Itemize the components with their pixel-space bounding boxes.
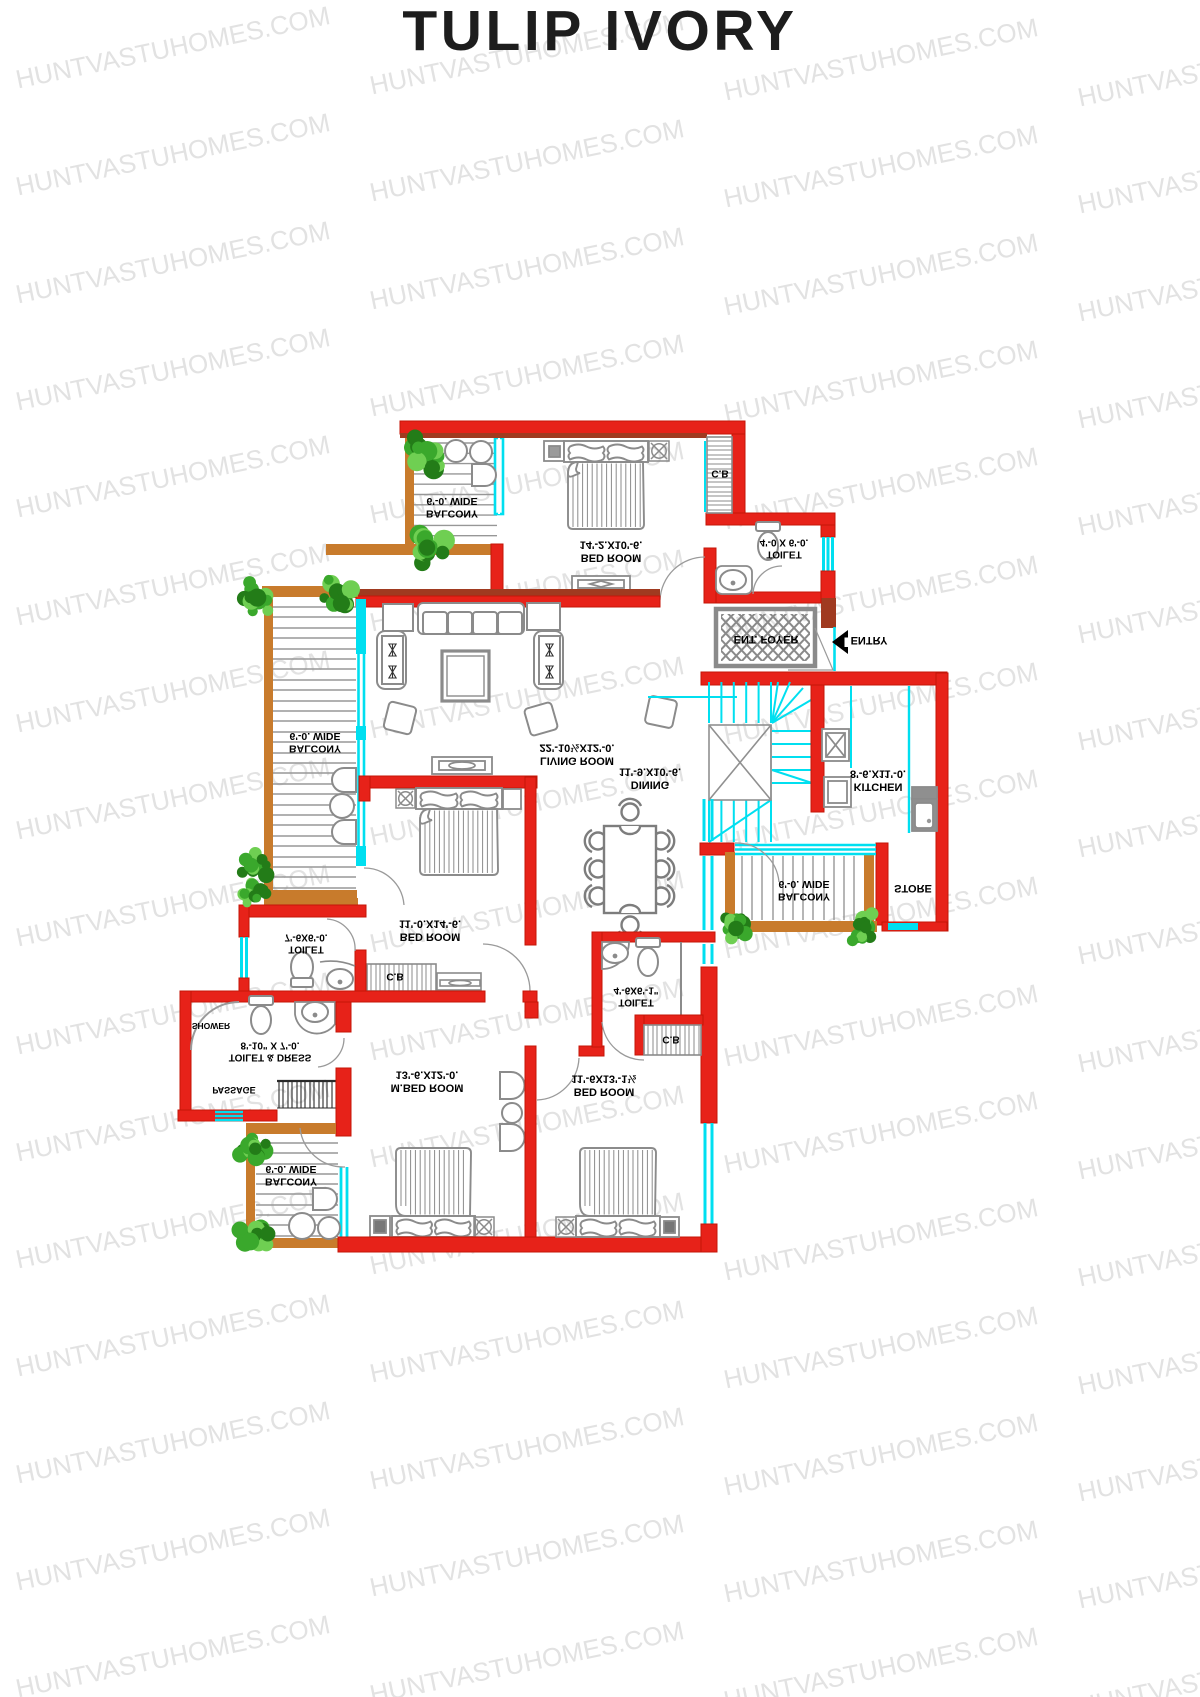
svg-text:TOILET: TOILET <box>766 549 801 560</box>
svg-text:8'-10" X 7'-0.: 8'-10" X 7'-0. <box>241 1040 300 1051</box>
svg-text:BED ROOM: BED ROOM <box>574 1086 635 1098</box>
svg-text:BED ROOM: BED ROOM <box>400 931 461 943</box>
svg-text:6'-0. WIDE: 6'-0. WIDE <box>266 1163 317 1175</box>
svg-text:7'-6X6'-0.: 7'-6X6'-0. <box>284 932 327 943</box>
svg-text:BED ROOM: BED ROOM <box>581 552 642 564</box>
svg-text:BALCONY: BALCONY <box>426 508 478 520</box>
svg-text:C.B: C.B <box>386 971 403 982</box>
svg-text:STORE: STORE <box>894 882 932 894</box>
svg-text:M.BED ROOM: M.BED ROOM <box>391 1082 464 1094</box>
svg-text:PASSAGE: PASSAGE <box>212 1085 255 1095</box>
svg-text:C.B: C.B <box>662 1034 679 1045</box>
svg-text:DINING: DINING <box>631 779 670 791</box>
svg-text:TOILET & DRESS: TOILET & DRESS <box>229 1052 312 1063</box>
svg-text:C.B: C.B <box>711 468 728 479</box>
svg-text:ENTRY: ENTRY <box>851 634 889 646</box>
svg-text:ENT. FOYER: ENT. FOYER <box>734 633 799 645</box>
svg-text:14'-2.X10'-6.: 14'-2.X10'-6. <box>580 539 643 551</box>
svg-text:11'-0.X14'-6.: 11'-0.X14'-6. <box>399 918 461 930</box>
svg-text:LIVING ROOM: LIVING ROOM <box>540 755 614 767</box>
svg-text:22'-10½X12'-0.: 22'-10½X12'-0. <box>540 742 615 754</box>
svg-text:KITCHEN: KITCHEN <box>854 781 903 793</box>
svg-text:4'-0 X 6'-0.: 4'-0 X 6'-0. <box>760 537 809 548</box>
svg-text:4'-6X6'-1": 4'-6X6'-1" <box>613 985 658 996</box>
svg-text:SHOWER: SHOWER <box>192 1021 230 1031</box>
svg-text:TOILET: TOILET <box>288 944 323 955</box>
svg-text:8'-6.X11'-0.: 8'-6.X11'-0. <box>850 768 906 780</box>
svg-text:11'-9.X10'-6.: 11'-9.X10'-6. <box>619 766 681 778</box>
svg-text:13'-6.X12'-0.: 13'-6.X12'-0. <box>396 1069 459 1081</box>
svg-text:BALCONY: BALCONY <box>289 743 341 755</box>
svg-text:BALCONY: BALCONY <box>265 1176 317 1188</box>
svg-text:11'-6X13'-1½: 11'-6X13'-1½ <box>571 1073 636 1085</box>
svg-text:BALCONY: BALCONY <box>778 891 830 903</box>
svg-text:6'-0. WIDE: 6'-0. WIDE <box>290 730 341 742</box>
svg-text:6'-0. WIDE: 6'-0. WIDE <box>779 878 830 890</box>
svg-text:TOILET: TOILET <box>618 997 653 1008</box>
svg-text:6'-0. WIDE: 6'-0. WIDE <box>427 495 478 507</box>
